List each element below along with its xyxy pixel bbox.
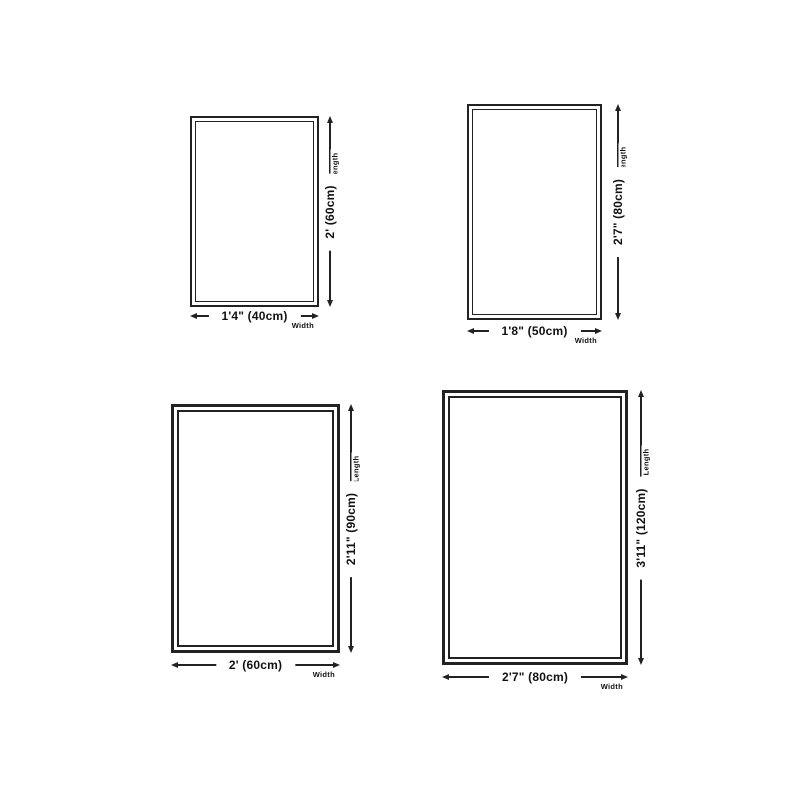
length-axis-label: Length (642, 445, 651, 478)
rug-rectangle-inner-border (448, 396, 622, 659)
width-axis-label: Width (601, 682, 623, 691)
width-value: 2'7" (80cm) (489, 669, 581, 685)
rug-rectangle (442, 390, 628, 665)
size-diagram-80x120cm: Length 3'11" (120cm) 2'7" (80cm) Width (0, 0, 800, 800)
length-value: 3'11" (120cm) (633, 476, 649, 579)
size-chart-canvas: Length 2' (60cm) 1'4" (40cm) Width Lengt… (0, 0, 800, 800)
arrow-left-icon (442, 674, 449, 680)
width-dimension: 2'7" (80cm) Width (442, 669, 628, 689)
length-dimension: Length 3'11" (120cm) (633, 390, 649, 665)
arrow-up-icon (638, 390, 644, 397)
arrow-down-icon (638, 658, 644, 665)
arrow-right-icon (621, 674, 628, 680)
